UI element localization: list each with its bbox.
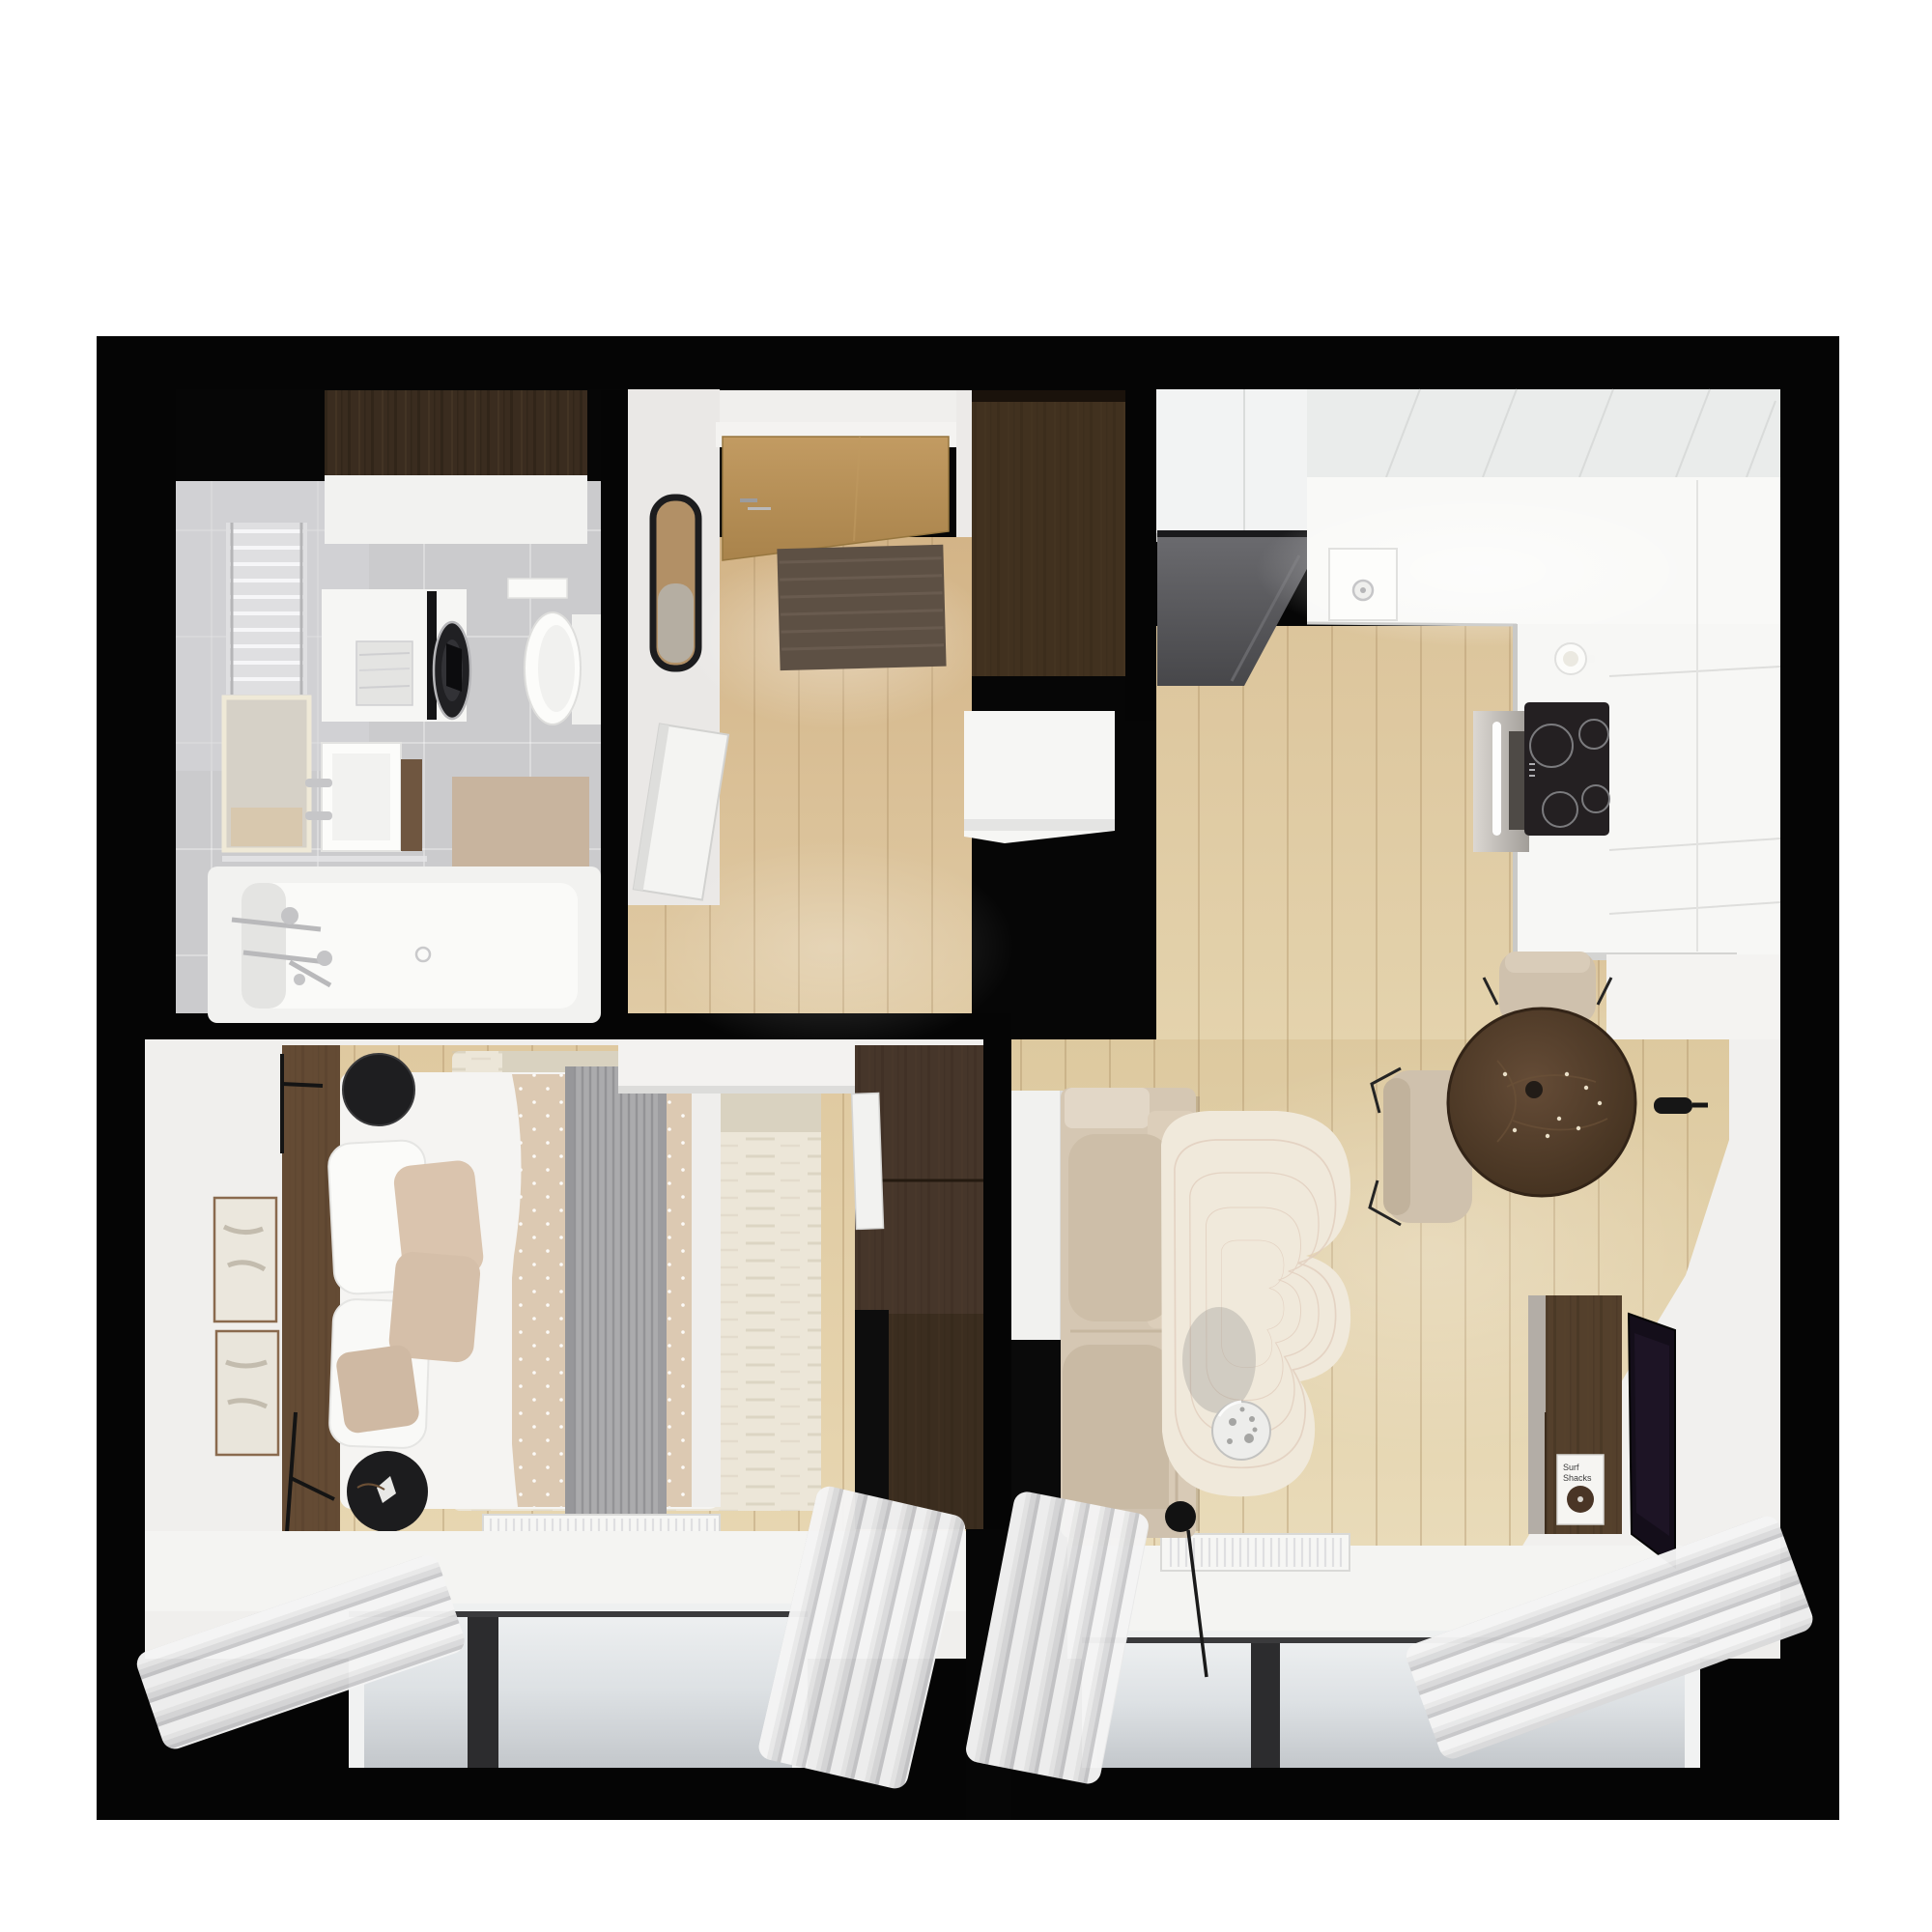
- svg-text:Shacks: Shacks: [1563, 1473, 1592, 1483]
- svg-text:Surf: Surf: [1563, 1463, 1579, 1472]
